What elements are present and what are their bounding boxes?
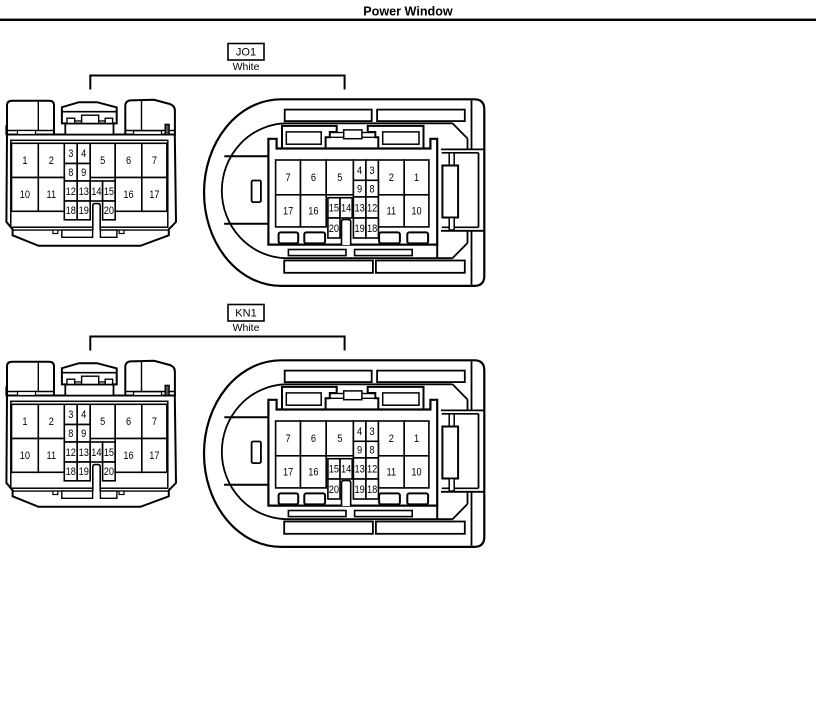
svg-text:5: 5	[337, 173, 342, 185]
svg-text:14: 14	[341, 464, 352, 476]
svg-text:3: 3	[370, 426, 375, 438]
svg-text:6: 6	[126, 156, 131, 168]
svg-text:19: 19	[79, 206, 90, 218]
svg-text:9: 9	[357, 445, 362, 457]
svg-text:3: 3	[68, 149, 73, 161]
svg-text:17: 17	[149, 451, 160, 463]
svg-text:18: 18	[66, 206, 77, 218]
svg-text:7: 7	[152, 156, 157, 168]
svg-text:13: 13	[79, 186, 90, 198]
svg-text:15: 15	[329, 464, 340, 476]
svg-text:2: 2	[49, 156, 54, 168]
svg-text:1: 1	[22, 156, 27, 168]
svg-text:19: 19	[354, 484, 365, 496]
svg-text:9: 9	[81, 167, 86, 179]
svg-text:White: White	[233, 61, 260, 73]
svg-text:15: 15	[329, 203, 340, 215]
svg-text:2: 2	[49, 417, 54, 429]
svg-text:14: 14	[341, 203, 352, 215]
svg-text:4: 4	[81, 149, 86, 161]
svg-text:10: 10	[20, 190, 31, 202]
svg-text:8: 8	[68, 167, 73, 179]
svg-text:1: 1	[22, 417, 27, 429]
svg-text:12: 12	[66, 186, 77, 198]
svg-text:16: 16	[308, 206, 319, 218]
svg-text:14: 14	[91, 447, 102, 459]
svg-text:8: 8	[370, 445, 375, 457]
svg-text:White: White	[233, 322, 260, 334]
svg-text:19: 19	[79, 467, 90, 479]
svg-text:18: 18	[367, 484, 378, 496]
svg-text:1: 1	[414, 173, 419, 185]
svg-text:12: 12	[66, 447, 77, 459]
svg-text:5: 5	[100, 417, 105, 429]
svg-text:9: 9	[81, 428, 86, 440]
svg-text:5: 5	[100, 156, 105, 168]
svg-text:16: 16	[123, 190, 134, 202]
svg-text:3: 3	[370, 165, 375, 177]
svg-text:KN1: KN1	[235, 308, 256, 320]
svg-text:14: 14	[91, 186, 102, 198]
svg-text:8: 8	[68, 428, 73, 440]
svg-text:12: 12	[367, 203, 378, 215]
svg-text:4: 4	[81, 410, 86, 422]
svg-text:6: 6	[126, 417, 131, 429]
svg-text:12: 12	[367, 464, 378, 476]
svg-text:5: 5	[337, 434, 342, 446]
svg-text:20: 20	[329, 484, 340, 496]
svg-text:7: 7	[286, 434, 291, 446]
svg-text:10: 10	[20, 451, 31, 463]
svg-text:16: 16	[123, 451, 134, 463]
svg-text:11: 11	[387, 206, 397, 218]
svg-text:10: 10	[411, 206, 422, 218]
svg-text:16: 16	[308, 467, 319, 479]
svg-text:20: 20	[329, 223, 340, 235]
svg-text:4: 4	[357, 426, 362, 438]
svg-text:7: 7	[286, 173, 291, 185]
svg-text:15: 15	[104, 447, 115, 459]
svg-text:2: 2	[389, 434, 394, 446]
svg-text:JO1: JO1	[236, 47, 256, 59]
svg-text:11: 11	[387, 467, 397, 479]
svg-text:20: 20	[104, 467, 115, 479]
svg-text:18: 18	[367, 223, 378, 235]
svg-text:11: 11	[47, 451, 57, 463]
svg-text:19: 19	[354, 223, 365, 235]
svg-text:20: 20	[104, 206, 115, 218]
svg-text:1: 1	[414, 434, 419, 446]
svg-text:17: 17	[283, 467, 294, 479]
svg-text:8: 8	[370, 184, 375, 196]
svg-text:17: 17	[149, 190, 160, 202]
svg-text:2: 2	[389, 173, 394, 185]
svg-text:9: 9	[357, 184, 362, 196]
svg-text:18: 18	[66, 467, 77, 479]
svg-text:Power Window: Power Window	[363, 5, 453, 19]
svg-text:10: 10	[411, 467, 422, 479]
svg-text:13: 13	[354, 203, 365, 215]
svg-text:15: 15	[104, 186, 115, 198]
svg-text:13: 13	[79, 447, 90, 459]
svg-text:6: 6	[311, 173, 316, 185]
svg-text:13: 13	[354, 464, 365, 476]
svg-text:3: 3	[68, 410, 73, 422]
svg-text:4: 4	[357, 165, 362, 177]
svg-text:17: 17	[283, 206, 294, 218]
svg-text:6: 6	[311, 434, 316, 446]
svg-text:7: 7	[152, 417, 157, 429]
svg-text:11: 11	[47, 190, 57, 202]
